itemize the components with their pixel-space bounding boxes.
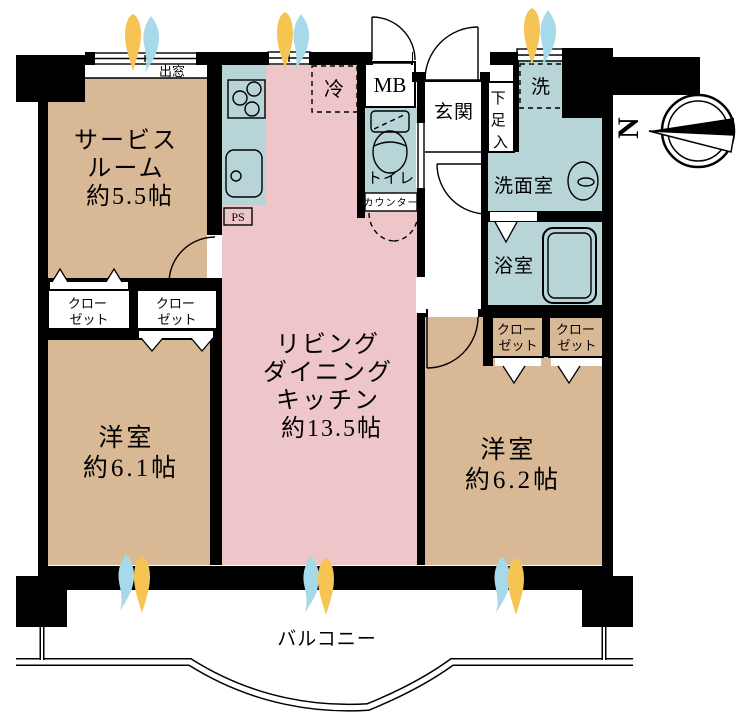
breeze-icon [540, 10, 556, 67]
closet-label: クロー ゼット [556, 322, 598, 353]
balcony-label: バルコニー [277, 629, 377, 650]
sunlight-icon [318, 558, 334, 615]
sunlight-icon [134, 556, 150, 613]
ps-north-label: PS [587, 102, 600, 116]
entrance-door-gap [426, 72, 480, 80]
sunlight-icon [508, 558, 524, 615]
sunlight-icon [524, 8, 540, 65]
wall-segment [196, 52, 269, 65]
breeze-icon [293, 14, 309, 71]
service-door-gap [207, 235, 222, 278]
washer-label: 洗 [531, 76, 551, 98]
wall-hall-right [481, 72, 488, 315]
wall-north-stub [605, 57, 700, 95]
washroom-label: 洗面室 [494, 175, 554, 197]
hall-door-arc [437, 164, 487, 214]
compass-north-label: N [612, 117, 645, 139]
wall-corner-nw [16, 55, 85, 102]
wall-closet-divider-west [130, 288, 137, 330]
refrigerator-label: 冷 [324, 78, 344, 101]
closet-west1-opening [50, 282, 128, 290]
wall-left [38, 102, 48, 568]
counter-label: カウンター [364, 197, 419, 209]
entrance-label: 玄関 [434, 101, 474, 123]
service-room-label: サービス ルーム 約5.5帖 [74, 127, 186, 210]
bay-window [93, 53, 197, 64]
closet-label: クロー ゼット [156, 296, 198, 327]
toilet-label: トイレ [367, 171, 415, 187]
bath-door-gap [490, 212, 537, 221]
balcony-pillar-left [16, 576, 67, 627]
closet-east2-opening [551, 357, 602, 366]
hall-ldk-opening [416, 277, 426, 313]
closet-west2-opening [139, 330, 213, 338]
mb-label: MB [374, 73, 407, 97]
bay-window-label: 出窓 [159, 64, 185, 79]
ps-kitchen-label: PS [231, 210, 244, 224]
closet-east1-opening [495, 357, 541, 366]
compass-needle-light [649, 131, 734, 152]
balcony-pillar-right [582, 576, 633, 627]
closet-label: クロー ゼット [68, 296, 110, 327]
wall-bath-bottom [481, 305, 613, 317]
compass: N [612, 95, 734, 167]
wall-toilet-left [357, 62, 365, 218]
wall-kitchen-service [207, 63, 222, 235]
bay-window-band [85, 65, 207, 78]
bathroom-label: 浴室 [494, 255, 534, 277]
floor-plan: N サービス ルーム 約5.5帖 リビング ダイニング キッチン 約13.5帖 … [0, 0, 750, 724]
east-room-door-gap [428, 309, 478, 317]
washer-window [517, 49, 563, 61]
sunlight-icon [277, 12, 293, 69]
closet-label: クロー ゼット [497, 322, 539, 353]
balcony-railing-outer [16, 662, 633, 708]
sunlight-icon [125, 14, 141, 71]
balcony-railing-inner [16, 662, 633, 708]
shoe-box-label: 下 足 入 [491, 91, 512, 151]
